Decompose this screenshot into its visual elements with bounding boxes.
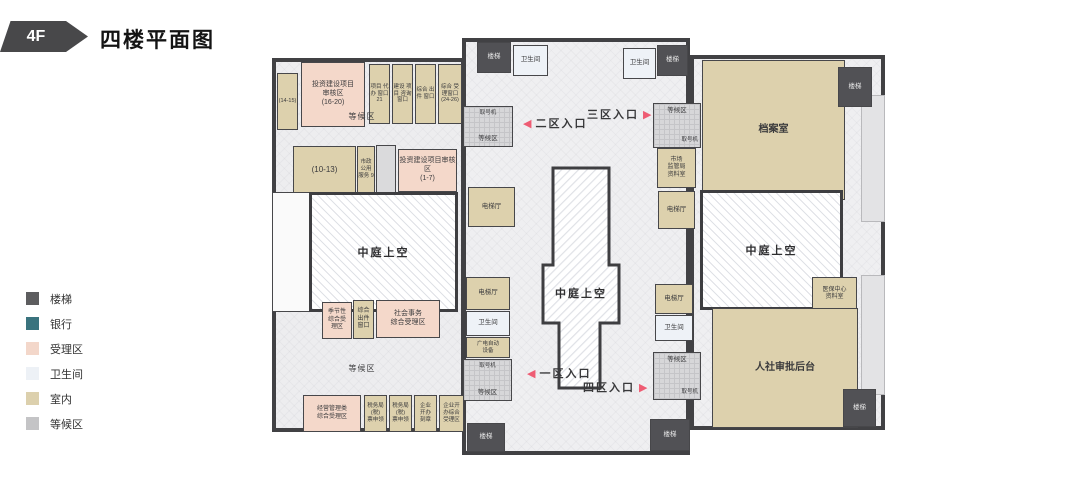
room-label: 建设 项目 咨询 窗口 [393, 84, 412, 105]
elevator-hall-label: 电梯厅 [667, 206, 687, 214]
entrance-zone2: ◀ 二区入口 [523, 115, 587, 131]
room-label: 市政 公用 服务 9 [358, 159, 374, 180]
restroom-label: 卫生间 [630, 59, 650, 67]
legend-label: 室内 [50, 391, 72, 407]
room-14-15: (14-15) [277, 73, 298, 130]
elevator-hall-label: 电梯厅 [478, 289, 498, 297]
number-machine-label: 取号机 [480, 110, 497, 117]
arrow-left-icon: ◀ [527, 367, 535, 380]
room-label: 企业 开办 刻章 [420, 403, 431, 424]
room-archive: 档案室 [702, 60, 845, 200]
room-seasonal: 季节性 综合受 理区 [322, 302, 352, 339]
room-label: 项目 代办 窗口 21 [370, 84, 389, 105]
waiting-grid-zone4: 等候区 取号机 [653, 352, 701, 400]
room-label: 市场 监管局 资料室 [667, 157, 685, 180]
arrow-right-icon: ▶ [643, 108, 651, 121]
elevator-hall-2: 电梯厅 [466, 277, 510, 310]
room-label: 综合 出件 窗口 [416, 87, 435, 101]
legend-label: 卫生间 [50, 366, 83, 382]
elevator-hall-label: 电梯厅 [482, 203, 502, 211]
room-label: 投资建设项目审核区 (1-7) [399, 157, 456, 183]
floor-badge: 4F [0, 21, 88, 52]
legend-item-restroom: 卫生间 [26, 361, 83, 386]
room-label: 广电自动 设备 [477, 341, 499, 355]
number-machine-label: 取号机 [681, 137, 698, 144]
stairs-right-top: 楼梯 [838, 67, 872, 107]
room-label: 季节性 综合受 理区 [328, 309, 346, 332]
elevator-hall-label: 电梯厅 [664, 295, 684, 303]
room-label: 综合 出件 窗口 [357, 308, 369, 331]
legend: 楼梯 银行 受理区 卫生间 室内 等候区 [26, 286, 83, 436]
room-tax-window-2: 税务局 (税) 票申领 [389, 395, 412, 432]
legend-item-acceptance: 受理区 [26, 336, 83, 361]
legend-swatch [26, 417, 39, 430]
entrance-label: 三区入口 [587, 106, 639, 122]
stairs-label: 楼梯 [488, 53, 501, 61]
room-label: 社会事务 综合受理区 [391, 310, 426, 328]
room-medical-center: 医保中心 资料室 [812, 277, 857, 311]
legend-label: 楼梯 [50, 291, 72, 307]
room-label: 综合 受理窗口 (24-26) [439, 84, 461, 105]
stairs-right-bottom: 楼梯 [843, 389, 876, 427]
waiting-grid-label: 等候区 [667, 107, 687, 115]
room-broadcast-equipment: 广电自动 设备 [466, 337, 510, 358]
room-unlabeled [272, 192, 310, 312]
number-machine-label: 取号机 [681, 389, 698, 396]
elevator-hall-3: 电梯厅 [658, 191, 695, 229]
waiting-grid-label: 等候区 [478, 389, 498, 397]
restroom-label: 卫生间 [521, 56, 541, 64]
atrium-label: 中庭上空 [358, 244, 410, 260]
room-window-output-bottom: 综合 出件 窗口 [353, 300, 374, 339]
room-label: 档案室 [759, 124, 789, 137]
room-municipal-service: 市政 公用 服务 9 [357, 146, 375, 193]
legend-item-waiting: 等候区 [26, 411, 83, 436]
room-label: 医保中心 资料室 [822, 287, 846, 302]
marble-strip [861, 275, 885, 395]
waiting-area-label-top: 等候区 [337, 111, 387, 122]
marble-strip [861, 95, 885, 222]
room-10-13: (10-13) [293, 146, 356, 193]
stairs-label: 楼梯 [666, 56, 679, 64]
room-social-affairs: 社会事务 综合受理区 [376, 300, 440, 338]
atrium-center-label: 中庭上空 [548, 285, 614, 301]
legend-swatch [26, 367, 39, 380]
room-tax-window-1: 税务局 (税) 票申领 [364, 395, 387, 432]
restroom-label: 卫生间 [478, 319, 498, 327]
legend-item-bank: 银行 [26, 311, 83, 336]
entrance-zone1: ◀ 一区入口 [527, 365, 591, 381]
legend-swatch [26, 342, 39, 355]
stairs-label: 楼梯 [849, 83, 862, 91]
room-label: 税务局 (税) 票申领 [392, 403, 409, 424]
legend-item-stairs: 楼梯 [26, 286, 83, 311]
floor-badge-label: 4F [27, 28, 46, 46]
restroom-top-right: 卫生间 [623, 48, 656, 79]
legend-label: 银行 [50, 316, 72, 332]
room-label: (10-13) [312, 165, 338, 175]
stairs-bottom-right: 楼梯 [650, 419, 690, 451]
room-biz-accept: 企业开 办综合 受理区 [439, 395, 464, 432]
room-biz-seal: 企业 开办 刻章 [414, 395, 437, 432]
waiting-grid-zone2: 取号机 等候区 [463, 106, 513, 147]
room-market-bureau: 市场 监管局 资料室 [657, 148, 696, 188]
floor-plan: (14-15) 投资建设项目 审核区 (16-20) 项目 代办 窗口 21 建… [265, 35, 895, 457]
room-label: 人社审批后台 [755, 362, 815, 375]
room-label: 企业开 办综合 受理区 [443, 403, 460, 424]
legend-swatch [26, 292, 39, 305]
stairs-top-left: 楼梯 [477, 42, 511, 73]
room-label: 经营管理类 综合受理区 [317, 406, 347, 421]
room-invest-1-7: 投资建设项目审核区 (1-7) [398, 149, 457, 192]
legend-label: 受理区 [50, 341, 83, 357]
room-label: (14-15) [279, 98, 297, 105]
waiting-grid-label: 等候区 [667, 356, 687, 364]
room-window-output-top: 综合 出件 窗口 [415, 64, 436, 124]
stairs-label: 楼梯 [480, 433, 493, 441]
stairs-bottom-left: 楼梯 [467, 423, 505, 452]
restroom-top-left: 卫生间 [513, 45, 548, 76]
restroom-label: 卫生间 [664, 324, 684, 332]
entrance-label: 二区入口 [535, 115, 587, 131]
room-hr-backend: 人社审批后台 [712, 308, 858, 428]
atrium-label: 中庭上空 [746, 242, 798, 258]
entrance-zone4: 四区入口 ▶ [583, 379, 647, 395]
stairs-top-right: 楼梯 [657, 45, 688, 76]
waiting-grid-zone3: 等候区 取号机 [653, 103, 701, 148]
legend-item-indoor: 室内 [26, 386, 83, 411]
elevator-hall-1: 电梯厅 [468, 187, 515, 227]
legend-swatch [26, 317, 39, 330]
room-window-construction: 建设 项目 咨询 窗口 [392, 64, 413, 124]
arrow-left-icon: ◀ [523, 117, 531, 130]
arrow-right-icon: ▶ [639, 381, 647, 394]
waiting-grid-label: 等候区 [478, 135, 498, 143]
restroom-right-mid: 卫生间 [655, 315, 693, 341]
legend-swatch [26, 392, 39, 405]
page-title: 四楼平面图 [100, 24, 215, 54]
entrance-zone3: 三区入口 ▶ [587, 106, 651, 122]
entrance-label: 四区入口 [583, 379, 635, 395]
number-machine-label: 取号机 [479, 363, 496, 370]
room-mgmt-accept: 经营管理类 综合受理区 [303, 395, 361, 432]
stairs-label: 楼梯 [664, 431, 677, 439]
restroom-left-mid: 卫生间 [466, 311, 510, 336]
stairs-label: 楼梯 [853, 404, 866, 412]
legend-label: 等候区 [50, 416, 83, 432]
elevator-hall-4: 电梯厅 [655, 284, 693, 314]
room-label: 税务局 (税) 票申领 [367, 403, 384, 424]
waiting-area-label-bottom: 等候区 [337, 363, 387, 374]
waiting-grid-zone1: 取号机 等候区 [463, 359, 512, 401]
corridor [376, 145, 396, 193]
room-label: 投资建设项目 审核区 (16-20) [312, 81, 354, 107]
room-window-accept-24-26: 综合 受理窗口 (24-26) [438, 64, 462, 124]
atrium-left: 中庭上空 [309, 192, 458, 312]
